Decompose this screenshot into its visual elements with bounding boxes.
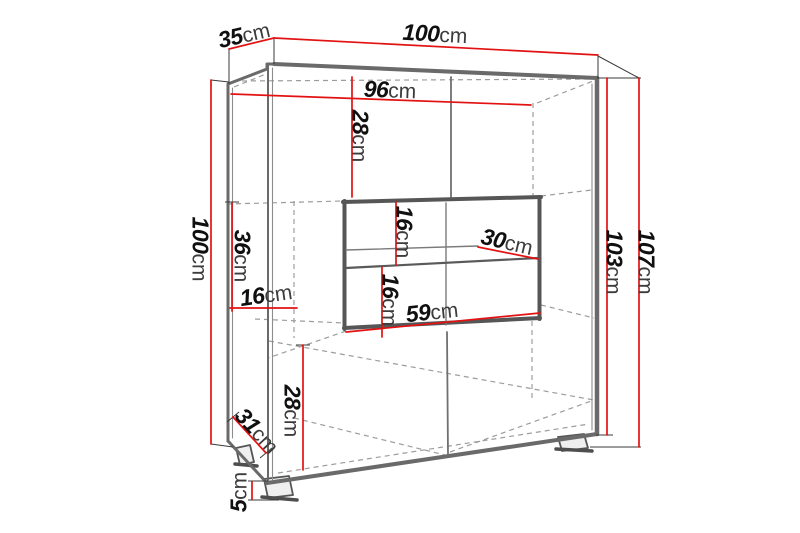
dim-label-body-height: 103cm [603, 230, 626, 295]
dim-value: 28 [348, 110, 374, 135]
dim-value: 16 [378, 274, 404, 299]
dim-unit: cm [439, 24, 468, 48]
foot-back-left [236, 445, 254, 465]
dim-label-inner-width: 96cm [363, 78, 416, 103]
dim-value: 5 [226, 500, 252, 512]
dim-label-total-height: 107cm [635, 230, 658, 295]
dim-value: 96 [363, 76, 388, 103]
dim-unit: cm [348, 134, 371, 162]
dim-label-niche-width: 59cm [405, 298, 460, 326]
dim-unit: cm [280, 409, 303, 437]
dim-value: 103 [602, 230, 628, 267]
dim-unit: cm [388, 79, 417, 103]
dim-value: 16 [238, 282, 266, 311]
dim-unit: cm [429, 299, 459, 325]
dim-label-lower-section-height: 28cm [281, 385, 304, 438]
dim-unit: cm [392, 230, 415, 258]
dim-value: 36 [230, 230, 256, 255]
furniture-dimension-diagram: 35cm100cm96cm28cm100cm36cm16cm16cm16cm30… [0, 0, 800, 533]
dim-value: 100 [188, 217, 214, 254]
dim-unit: cm [378, 298, 401, 326]
glass-shelf-front-edge [346, 258, 538, 268]
dim-value: 16 [392, 206, 418, 231]
dim-label-left-height: 100cm [189, 217, 212, 282]
extension-lines [211, 38, 641, 500]
dim-value: 107 [634, 230, 660, 267]
dim-unit: cm [263, 281, 294, 308]
dim-unit: cm [602, 266, 625, 294]
dim-value: 59 [404, 299, 431, 327]
dim-unit: cm [634, 266, 657, 294]
dim-label-niche-lower-height: 16cm [379, 274, 402, 327]
dim-label-top-width: 100cm [402, 21, 468, 47]
dim-unit: cm [188, 253, 211, 281]
dim-label-foot-height: 5cm [228, 472, 251, 512]
dim-value: 28 [280, 385, 306, 410]
dim-label-upper-section-height: 28cm [349, 110, 372, 163]
dim-label-niche-outer-height: 36cm [231, 230, 254, 283]
dim-label-niche-upper-height: 16cm [393, 206, 416, 259]
dim-unit: cm [229, 472, 252, 500]
dimension-lines [211, 38, 639, 499]
dim-value: 100 [402, 19, 440, 47]
dim-unit: cm [230, 254, 253, 282]
